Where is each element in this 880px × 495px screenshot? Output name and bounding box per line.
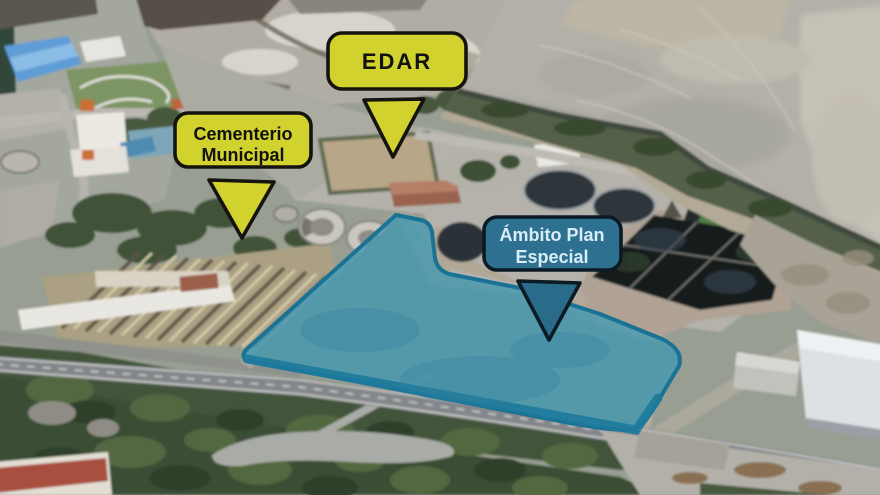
svg-text:Cementerio: Cementerio [193,124,292,144]
svg-text:Especial: Especial [515,247,588,267]
svg-text:EDAR: EDAR [362,49,432,74]
svg-text:Ámbito Plan: Ámbito Plan [499,224,604,245]
svg-text:Municipal: Municipal [201,145,284,165]
